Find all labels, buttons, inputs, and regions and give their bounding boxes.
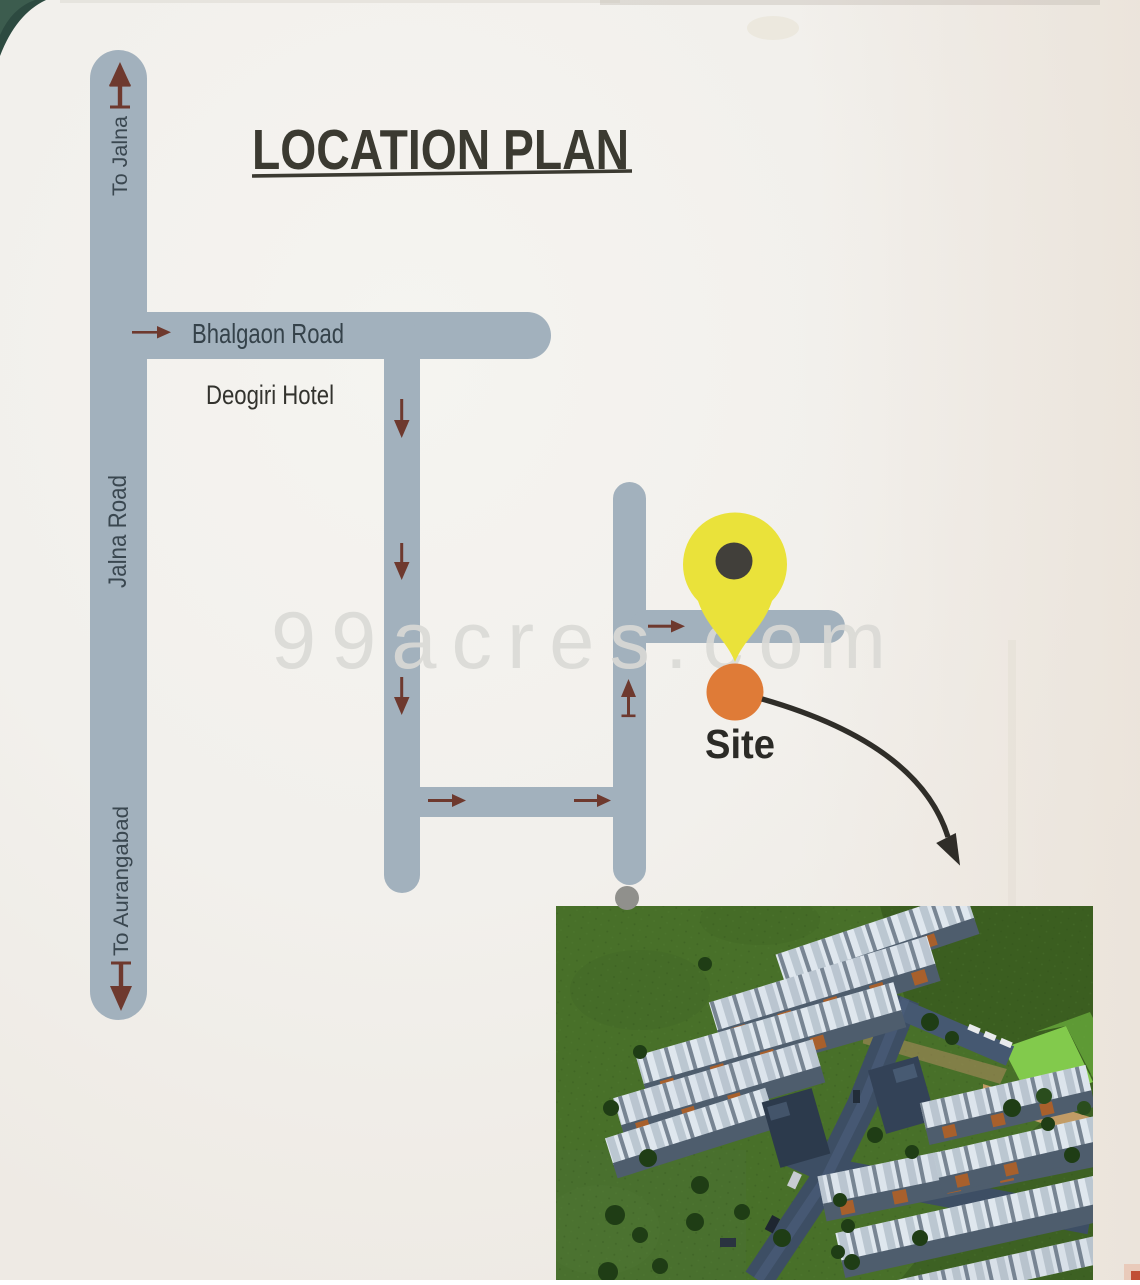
svg-text:Bhalgaon Road: Bhalgaon Road — [192, 318, 344, 349]
svg-text:Site: Site — [705, 721, 775, 767]
svg-text:99acres.com: 99acres.com — [271, 596, 886, 686]
svg-text:To Aurangabad: To Aurangabad — [110, 806, 133, 956]
svg-text:Jalna Road: Jalna Road — [104, 475, 132, 588]
svg-text:Deogiri Hotel: Deogiri Hotel — [206, 380, 334, 410]
svg-text:To Jalna: To Jalna — [109, 116, 132, 196]
